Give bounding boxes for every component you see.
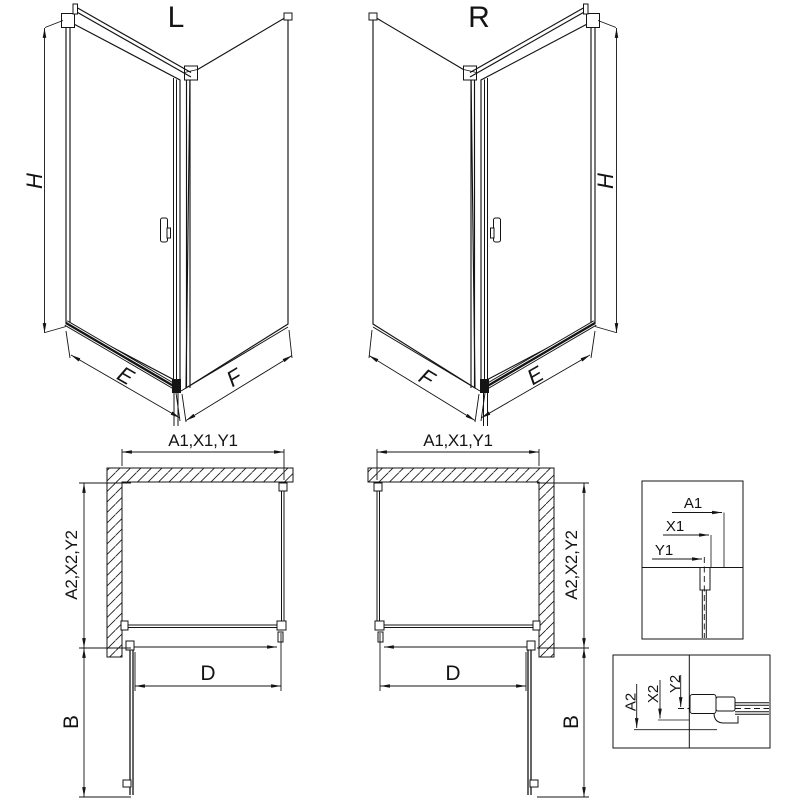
dim-label-a2-left: A2,X2,Y2 xyxy=(62,530,81,599)
wall-profile-section xyxy=(374,483,382,491)
wall-side-cap xyxy=(121,621,128,630)
door-hinge-plan xyxy=(527,641,535,650)
door-panel-glass xyxy=(481,22,591,383)
detail-label-x2: X2 xyxy=(645,685,662,703)
plan-view-left: A1,X1,Y1 A2,X2,Y2 D B xyxy=(60,431,293,797)
dim-label-d-right: D xyxy=(445,662,460,685)
detail-label-y1: Y1 xyxy=(655,542,673,559)
corner-foot xyxy=(172,379,181,393)
dim-label-d-left: D xyxy=(200,662,215,685)
wall-section xyxy=(107,468,293,657)
door-hinge-plan xyxy=(126,641,134,650)
plan-view-right: A1,X1,Y1 A2,X2,Y2 D B xyxy=(368,431,589,797)
dim-d-left: D xyxy=(135,633,281,691)
detail-view-a1: A1 X1 Y1 xyxy=(642,481,743,639)
dim-label-f-right: F xyxy=(415,363,441,392)
corner-cap xyxy=(464,66,477,80)
diagram-canvas: L xyxy=(0,0,800,800)
side-panel-glass xyxy=(373,16,475,388)
view-title-left: L xyxy=(168,1,185,34)
perspective-view-left: L xyxy=(22,1,292,426)
door-panel-glass xyxy=(70,22,180,383)
view-title-right: R xyxy=(468,1,490,34)
handle-knob-plan xyxy=(278,632,283,642)
handle-knob-plan xyxy=(378,632,383,642)
dim-label-b-right: B xyxy=(560,715,583,729)
detail-label-a1: A1 xyxy=(684,495,702,512)
wall-profile-section xyxy=(279,483,287,491)
handle-open-plan xyxy=(123,780,131,787)
corner-cap xyxy=(185,66,198,80)
technical-drawing: L xyxy=(0,0,800,800)
dim-label-a2-right: A2,X2,Y2 xyxy=(562,530,581,599)
dim-label-e-left: E xyxy=(113,361,138,390)
handle-open-plan xyxy=(530,780,538,787)
dim-label-h-left: H xyxy=(22,173,47,189)
panel-top-cap xyxy=(284,13,292,20)
dim-label-h-right: H xyxy=(593,173,618,189)
dim-label-b-left: B xyxy=(60,715,83,729)
dim-b-right: B xyxy=(537,648,589,797)
wall-section xyxy=(368,468,554,657)
wall-bracket xyxy=(587,14,600,28)
dim-label-f-left: F xyxy=(222,363,248,392)
dim-label-e-right: E xyxy=(523,361,548,390)
dim-label-a1-left: A1,X1,Y1 xyxy=(168,431,237,450)
wall-profile-detail xyxy=(700,568,710,591)
side-panel-glass xyxy=(186,16,288,388)
detail-label-y2: Y2 xyxy=(667,675,684,693)
detail-view-a2: A2 X2 Y2 xyxy=(613,655,770,748)
wall-side-cap xyxy=(533,621,540,630)
dim-height-right: H xyxy=(593,21,618,334)
dim-d-right: D xyxy=(380,633,526,691)
corner-connector xyxy=(277,621,286,630)
detail-label-x1: X1 xyxy=(666,518,684,535)
corner-connector xyxy=(375,621,384,630)
perspective-view-right: R xyxy=(369,1,618,426)
detail-label-a2: A2 xyxy=(623,693,640,711)
dim-b-left: B xyxy=(60,648,131,797)
dim-height-left: H xyxy=(22,21,66,334)
panel-top-cap xyxy=(369,13,377,20)
dim-label-a1-right: A1,X1,Y1 xyxy=(423,431,492,450)
wall-bracket xyxy=(62,14,75,28)
wall-profile-detail xyxy=(690,695,716,714)
